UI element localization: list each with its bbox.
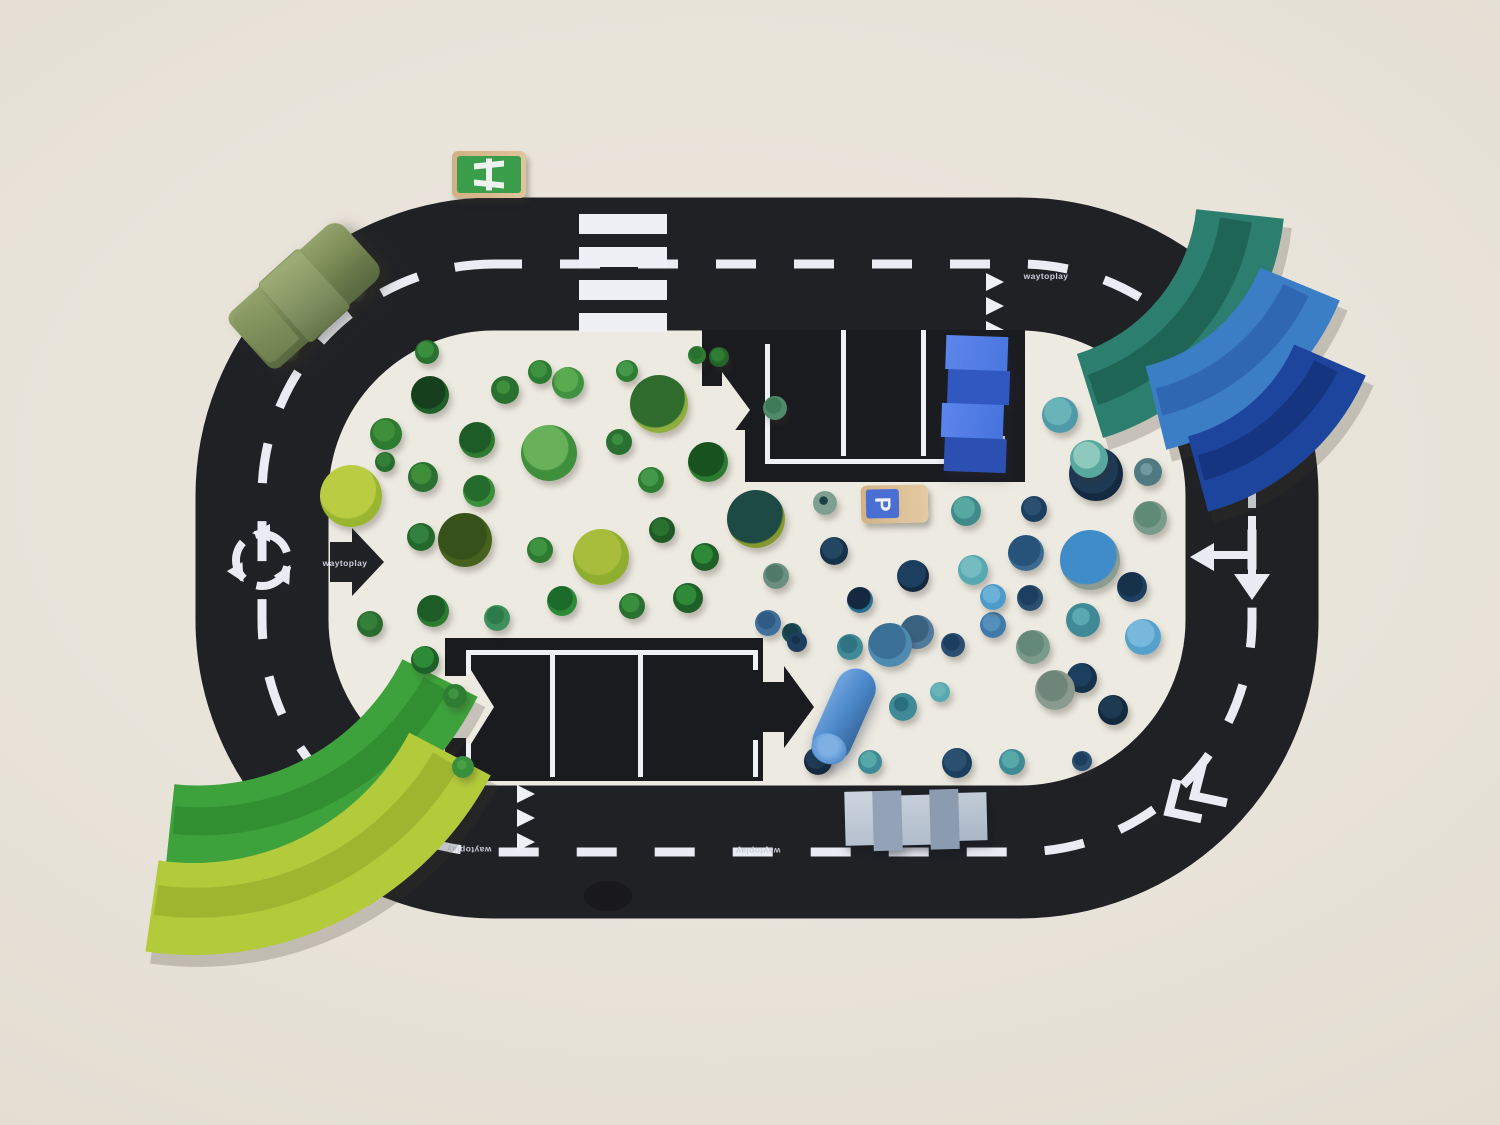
toy-road-scene: waytoplay waytoplay waytoplay waytoplay <box>0 0 1500 1125</box>
motorway-sign-icon <box>457 156 521 193</box>
folding-bridge-blue <box>942 335 1009 473</box>
giveway-markings-bottom <box>517 785 535 851</box>
giveway-markings-top <box>986 273 1004 339</box>
bridge-segment <box>958 792 988 841</box>
brand-text-left: waytoplay <box>322 558 368 568</box>
bridge-segment <box>947 369 1010 405</box>
parking-sign-face: P <box>866 489 900 519</box>
parking-sign: P <box>861 484 929 523</box>
bridge-segment <box>901 795 931 846</box>
bridge-segment <box>844 791 874 846</box>
bridge-segment <box>941 403 1004 439</box>
bridge-segment <box>945 335 1008 371</box>
brand-text-top-right: waytoplay <box>1023 271 1069 281</box>
motorway-sign-face <box>457 156 521 193</box>
bridge-segment <box>929 789 959 850</box>
bridge-segment <box>873 790 903 851</box>
folding-bridge-gray <box>844 788 988 852</box>
parking-sign-letter: P <box>871 496 893 511</box>
road-track-svg: waytoplay waytoplay waytoplay waytoplay <box>0 0 1500 1125</box>
brand-text-bottom-right: waytoplay <box>736 846 782 856</box>
motorway-sign <box>452 151 526 198</box>
road-smudge <box>584 881 632 911</box>
bridge-segment <box>944 437 1007 473</box>
